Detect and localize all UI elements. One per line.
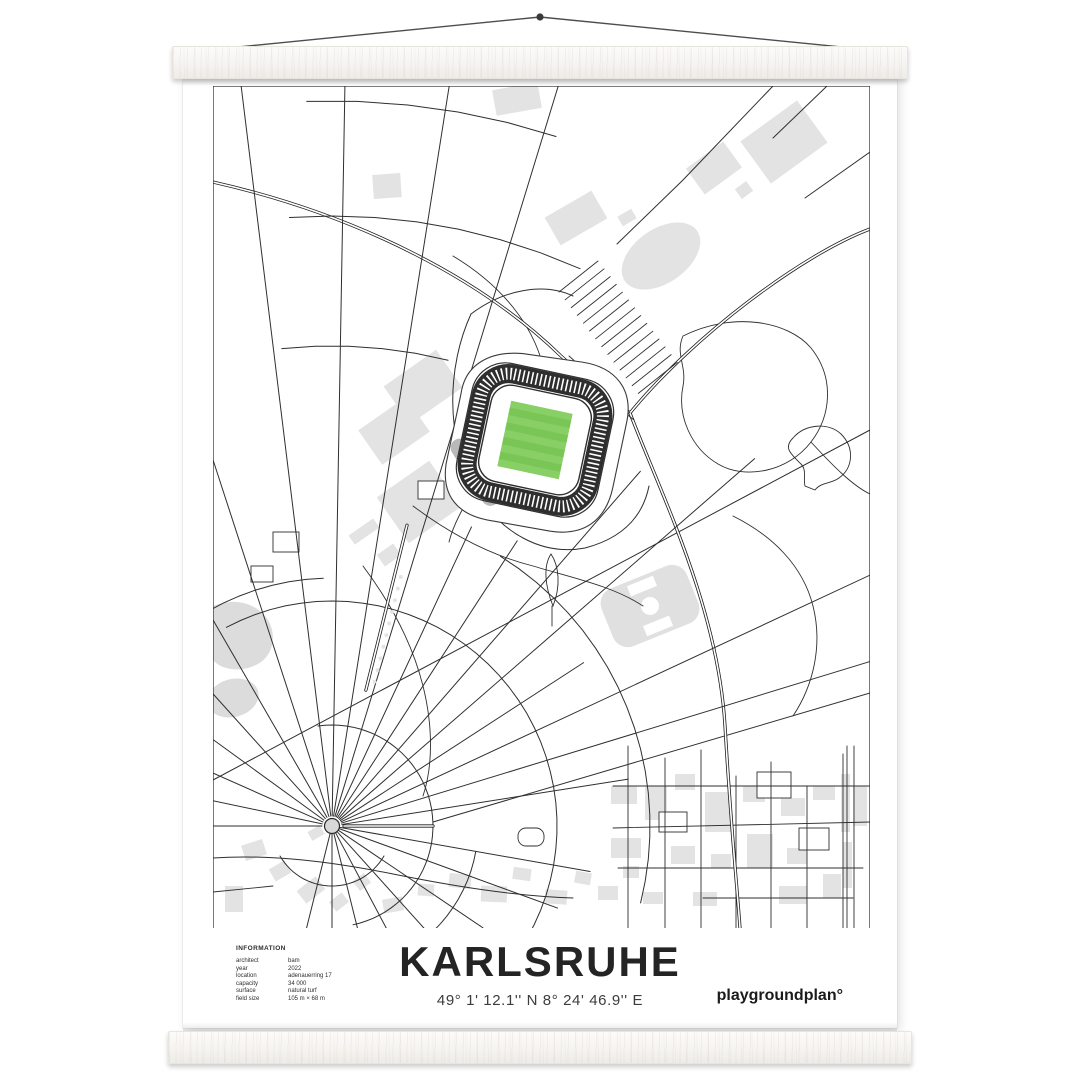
training-field	[596, 560, 705, 652]
poster-product-photo: INFORMATION architectbam year2022 locati…	[0, 0, 1080, 1080]
bottom-wooden-rail	[168, 1031, 912, 1064]
poster: INFORMATION architectbam year2022 locati…	[183, 56, 897, 1028]
city-title: KARLSRUHE	[183, 940, 897, 984]
city-map	[213, 86, 870, 928]
brand-logo: playgroundplan°	[717, 987, 843, 1005]
lake-outline	[788, 426, 850, 490]
stadium-pitch	[497, 400, 574, 480]
stadium-marker	[434, 338, 637, 544]
top-wooden-rail	[172, 46, 908, 79]
wall-pin-icon	[536, 13, 543, 20]
pond-lens	[546, 554, 558, 626]
arena-outline	[518, 828, 544, 846]
palace-circle	[325, 819, 340, 834]
